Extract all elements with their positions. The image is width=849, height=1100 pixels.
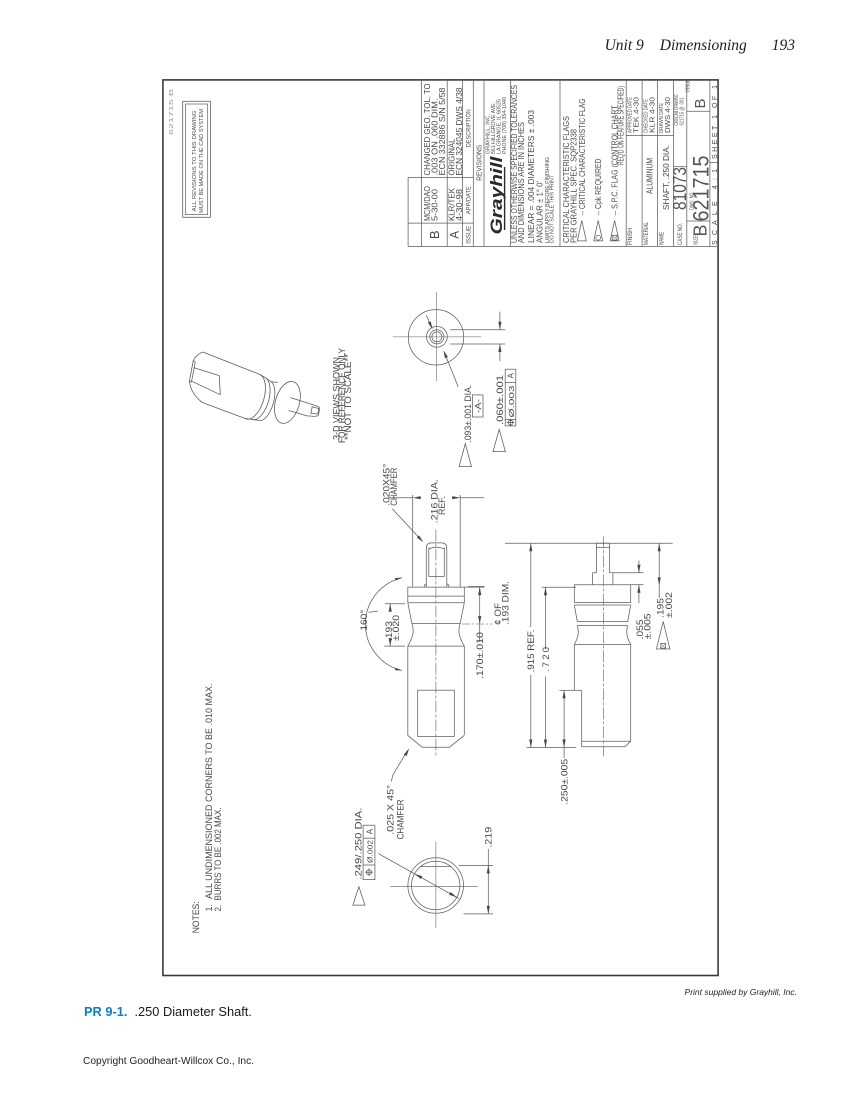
- svg-text:Grayhill: Grayhill: [487, 155, 506, 235]
- svg-text:ALUMINUM: ALUMINUM: [646, 158, 655, 194]
- svg-text:.219: .219: [484, 827, 495, 848]
- svg-text:621715 B: 621715 B: [169, 88, 175, 135]
- svg-text:SIZE: SIZE: [694, 234, 700, 245]
- svg-text:-- Cpk REQUIRED: -- Cpk REQUIRED: [594, 158, 603, 215]
- svg-text:SCALE 4:1: SCALE 4:1: [712, 169, 719, 245]
- svg-text:NOTES:: NOTES:: [191, 901, 202, 933]
- svg-text:4-30-98: 4-30-98: [455, 188, 464, 221]
- svg-text:FINISH: FINISH: [628, 228, 634, 245]
- svg-text:REQ'D ON FEATURE SPECIFIED): REQ'D ON FEATURE SPECIFIED): [617, 86, 626, 165]
- svg-text:ISSUE: ISSUE: [466, 225, 473, 244]
- svg-text:2. BURRS TO BE .002 MAX.: 2. BURRS TO BE .002 MAX.: [213, 808, 224, 912]
- svg-text:NAME: NAME: [660, 232, 666, 245]
- svg-text:**NOT TO SCALE**: **NOT TO SCALE**: [343, 354, 354, 440]
- svg-text:SHEET 1 OF 1: SHEET 1 OF 1: [712, 85, 719, 159]
- svg-text:81073: 81073: [670, 167, 690, 210]
- svg-text:AND DIMENSIONS ARE IN INCHES: AND DIMENSIONS ARE IN INCHES: [517, 122, 526, 243]
- svg-text:B: B: [427, 230, 442, 239]
- svg-text:-- CRITICAL CHARACTERISTIC FLA: -- CRITICAL CHARACTERISTIC FLAG: [578, 99, 587, 216]
- svg-text:5-30-00: 5-30-00: [430, 188, 439, 221]
- svg-text:.720: .720: [541, 647, 552, 672]
- svg-text:ISSUE: ISSUE: [686, 79, 692, 92]
- svg-text:REF.: REF.: [437, 496, 448, 515]
- svg-text:Ø.003: Ø.003: [507, 386, 516, 418]
- svg-text:CHAMFER: CHAMFER: [396, 799, 407, 839]
- svg-text:ALL REVISIONS TO THIS DRAWING: ALL REVISIONS TO THIS DRAWING: [192, 110, 198, 212]
- svg-text:CHAMFER: CHAMFER: [389, 468, 400, 506]
- svg-text:±.020: ±.020: [391, 615, 401, 641]
- svg-text:REVISIONS: REVISIONS: [476, 144, 483, 180]
- svg-text:621715: 621715: [689, 156, 714, 222]
- svg-text:APP/DATE: APP/DATE: [466, 186, 473, 215]
- svg-text:A: A: [507, 372, 516, 378]
- svg-text:.249/.250 DIA.: .249/.250 DIA.: [353, 808, 364, 880]
- svg-text:TEK 4-30: TEK 4-30: [634, 97, 641, 133]
- svg-text:ANGULAR ± 1° 0': ANGULAR ± 1° 0': [535, 181, 544, 243]
- svg-text:Ø.002: Ø.002: [366, 840, 375, 863]
- svg-text:.915 REF.: .915 REF.: [526, 630, 537, 673]
- svg-text:B: B: [692, 98, 709, 108]
- svg-text:±.005: ±.005: [643, 613, 653, 639]
- svg-text:DO NOT SCALE THIS PRINT: DO NOT SCALE THIS PRINT: [550, 175, 556, 243]
- svg-text:DESCRIPTION: DESCRIPTION: [466, 109, 473, 147]
- svg-text:-A-: -A-: [474, 399, 483, 413]
- svg-text:A: A: [450, 231, 462, 239]
- svg-text:DWS 4-30: DWS 4-30: [665, 97, 672, 133]
- svg-text:KLR 4-30: KLR 4-30: [650, 97, 657, 133]
- svg-text:ECN 324045 DWS 4/38: ECN 324045 DWS 4/38: [455, 87, 464, 176]
- svg-text:.170±.010: .170±.010: [475, 632, 486, 679]
- svg-text:B: B: [690, 224, 710, 236]
- svg-text:A: A: [365, 828, 374, 834]
- svg-text:.060±.001: .060±.001: [495, 375, 506, 425]
- svg-text:.250±.005: .250±.005: [559, 759, 570, 805]
- svg-text:.193 DIM.: .193 DIM.: [500, 581, 511, 625]
- svg-text:CASE NO.: CASE NO.: [678, 223, 684, 245]
- svg-text:MATERIAL: MATERIAL: [644, 221, 650, 245]
- svg-text:PHONE (708) 354-1040: PHONE (708) 354-1040: [502, 97, 508, 154]
- svg-text:160°: 160°: [359, 609, 370, 630]
- svg-text:621715 @ .001: 621715 @ .001: [680, 98, 686, 126]
- svg-text:ECN 332886 S/N 5/58: ECN 332886 S/N 5/58: [438, 87, 447, 176]
- svg-text:MUST BE MADE ON THE CAD SYSTEM: MUST BE MADE ON THE CAD SYSTEM: [199, 109, 205, 213]
- svg-text:±.002: ±.002: [664, 592, 674, 618]
